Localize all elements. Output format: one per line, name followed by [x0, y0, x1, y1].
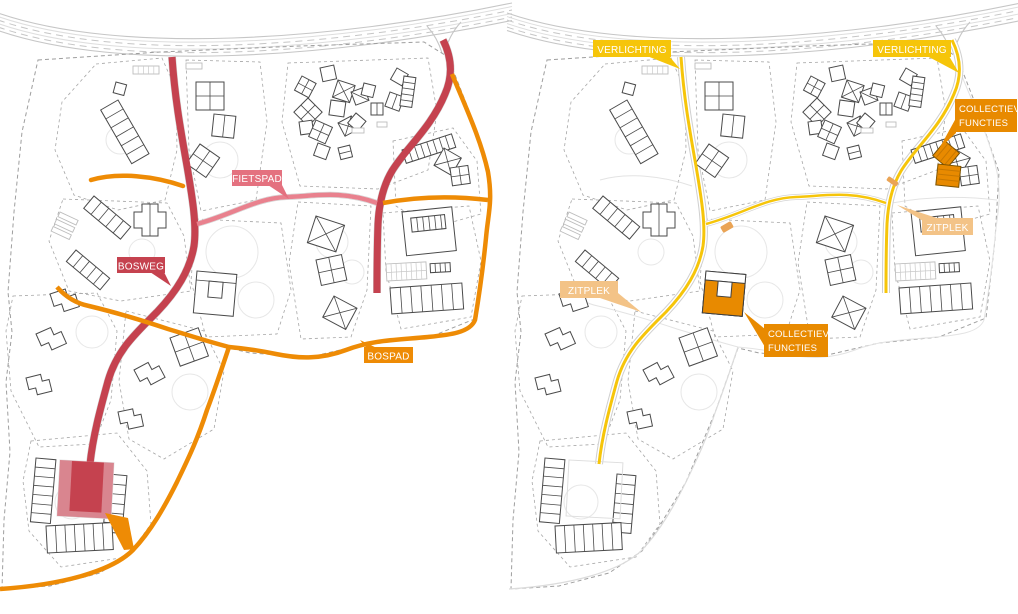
label-collectieve-ne-line1: COLLECTIEVE — [959, 104, 1018, 115]
label-fietspad-text: FIETSPAD — [232, 174, 282, 185]
bospad-route-west-stub — [91, 176, 183, 186]
label-zitplek-west-text: ZITPLEK — [568, 286, 610, 297]
label-verlichting-east: VERLICHTING — [873, 40, 959, 73]
zitplek-mark-center — [720, 221, 734, 233]
label-bosweg-text: BOSWEG — [118, 262, 164, 273]
label-verlichting-east-text: VERLICHTING — [877, 45, 946, 56]
label-collectieve-center-line2: FUNCTIES — [768, 343, 817, 354]
label-verlichting-west: VERLICHTING — [593, 40, 680, 69]
bospad-route-east-link — [383, 197, 488, 203]
plaza-dark — [69, 461, 104, 513]
label-collectieve-center-line1: COLLECTIEVE — [768, 329, 836, 340]
collective-building-center — [702, 271, 746, 316]
label-verlichting-west-text: VERLICHTING — [597, 45, 666, 56]
label-bospad-text: BOSPAD — [367, 352, 409, 363]
dual-site-plan-diagram: FIETSPAD BOSWEG BOSPAD — [0, 0, 1018, 614]
collective-building-ne-square — [936, 164, 961, 187]
label-collectieve-ne-line2: FUNCTIES — [959, 118, 1008, 129]
site-plan-svg: FIETSPAD BOSWEG BOSPAD — [0, 0, 1018, 614]
label-zitplek-east-text: ZITPLEK — [927, 223, 969, 234]
label-bosweg: BOSWEG — [117, 257, 171, 286]
label-bosweg-tail — [150, 272, 171, 286]
label-collectieve-functies-center: COLLECTIEVE FUNCTIES — [744, 312, 836, 357]
